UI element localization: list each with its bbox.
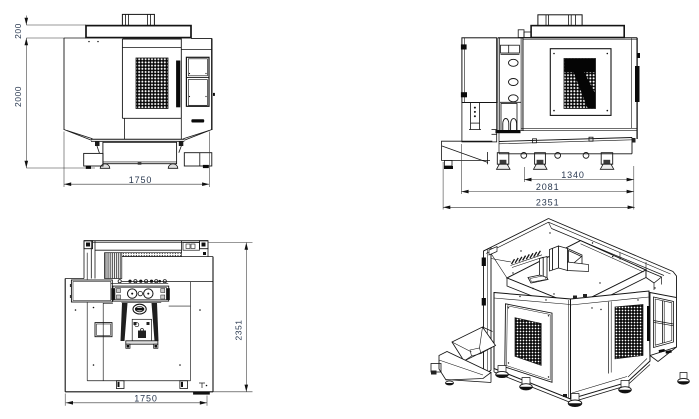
- svg-text:2000: 2000: [13, 86, 23, 107]
- svg-text:2081: 2081: [536, 182, 560, 192]
- svg-text:2351: 2351: [234, 320, 244, 341]
- svg-text:1750: 1750: [129, 175, 153, 185]
- svg-text:2351: 2351: [536, 198, 560, 208]
- svg-text:1750: 1750: [134, 394, 158, 404]
- svg-text:1340: 1340: [561, 170, 585, 180]
- svg-text:200: 200: [13, 23, 23, 39]
